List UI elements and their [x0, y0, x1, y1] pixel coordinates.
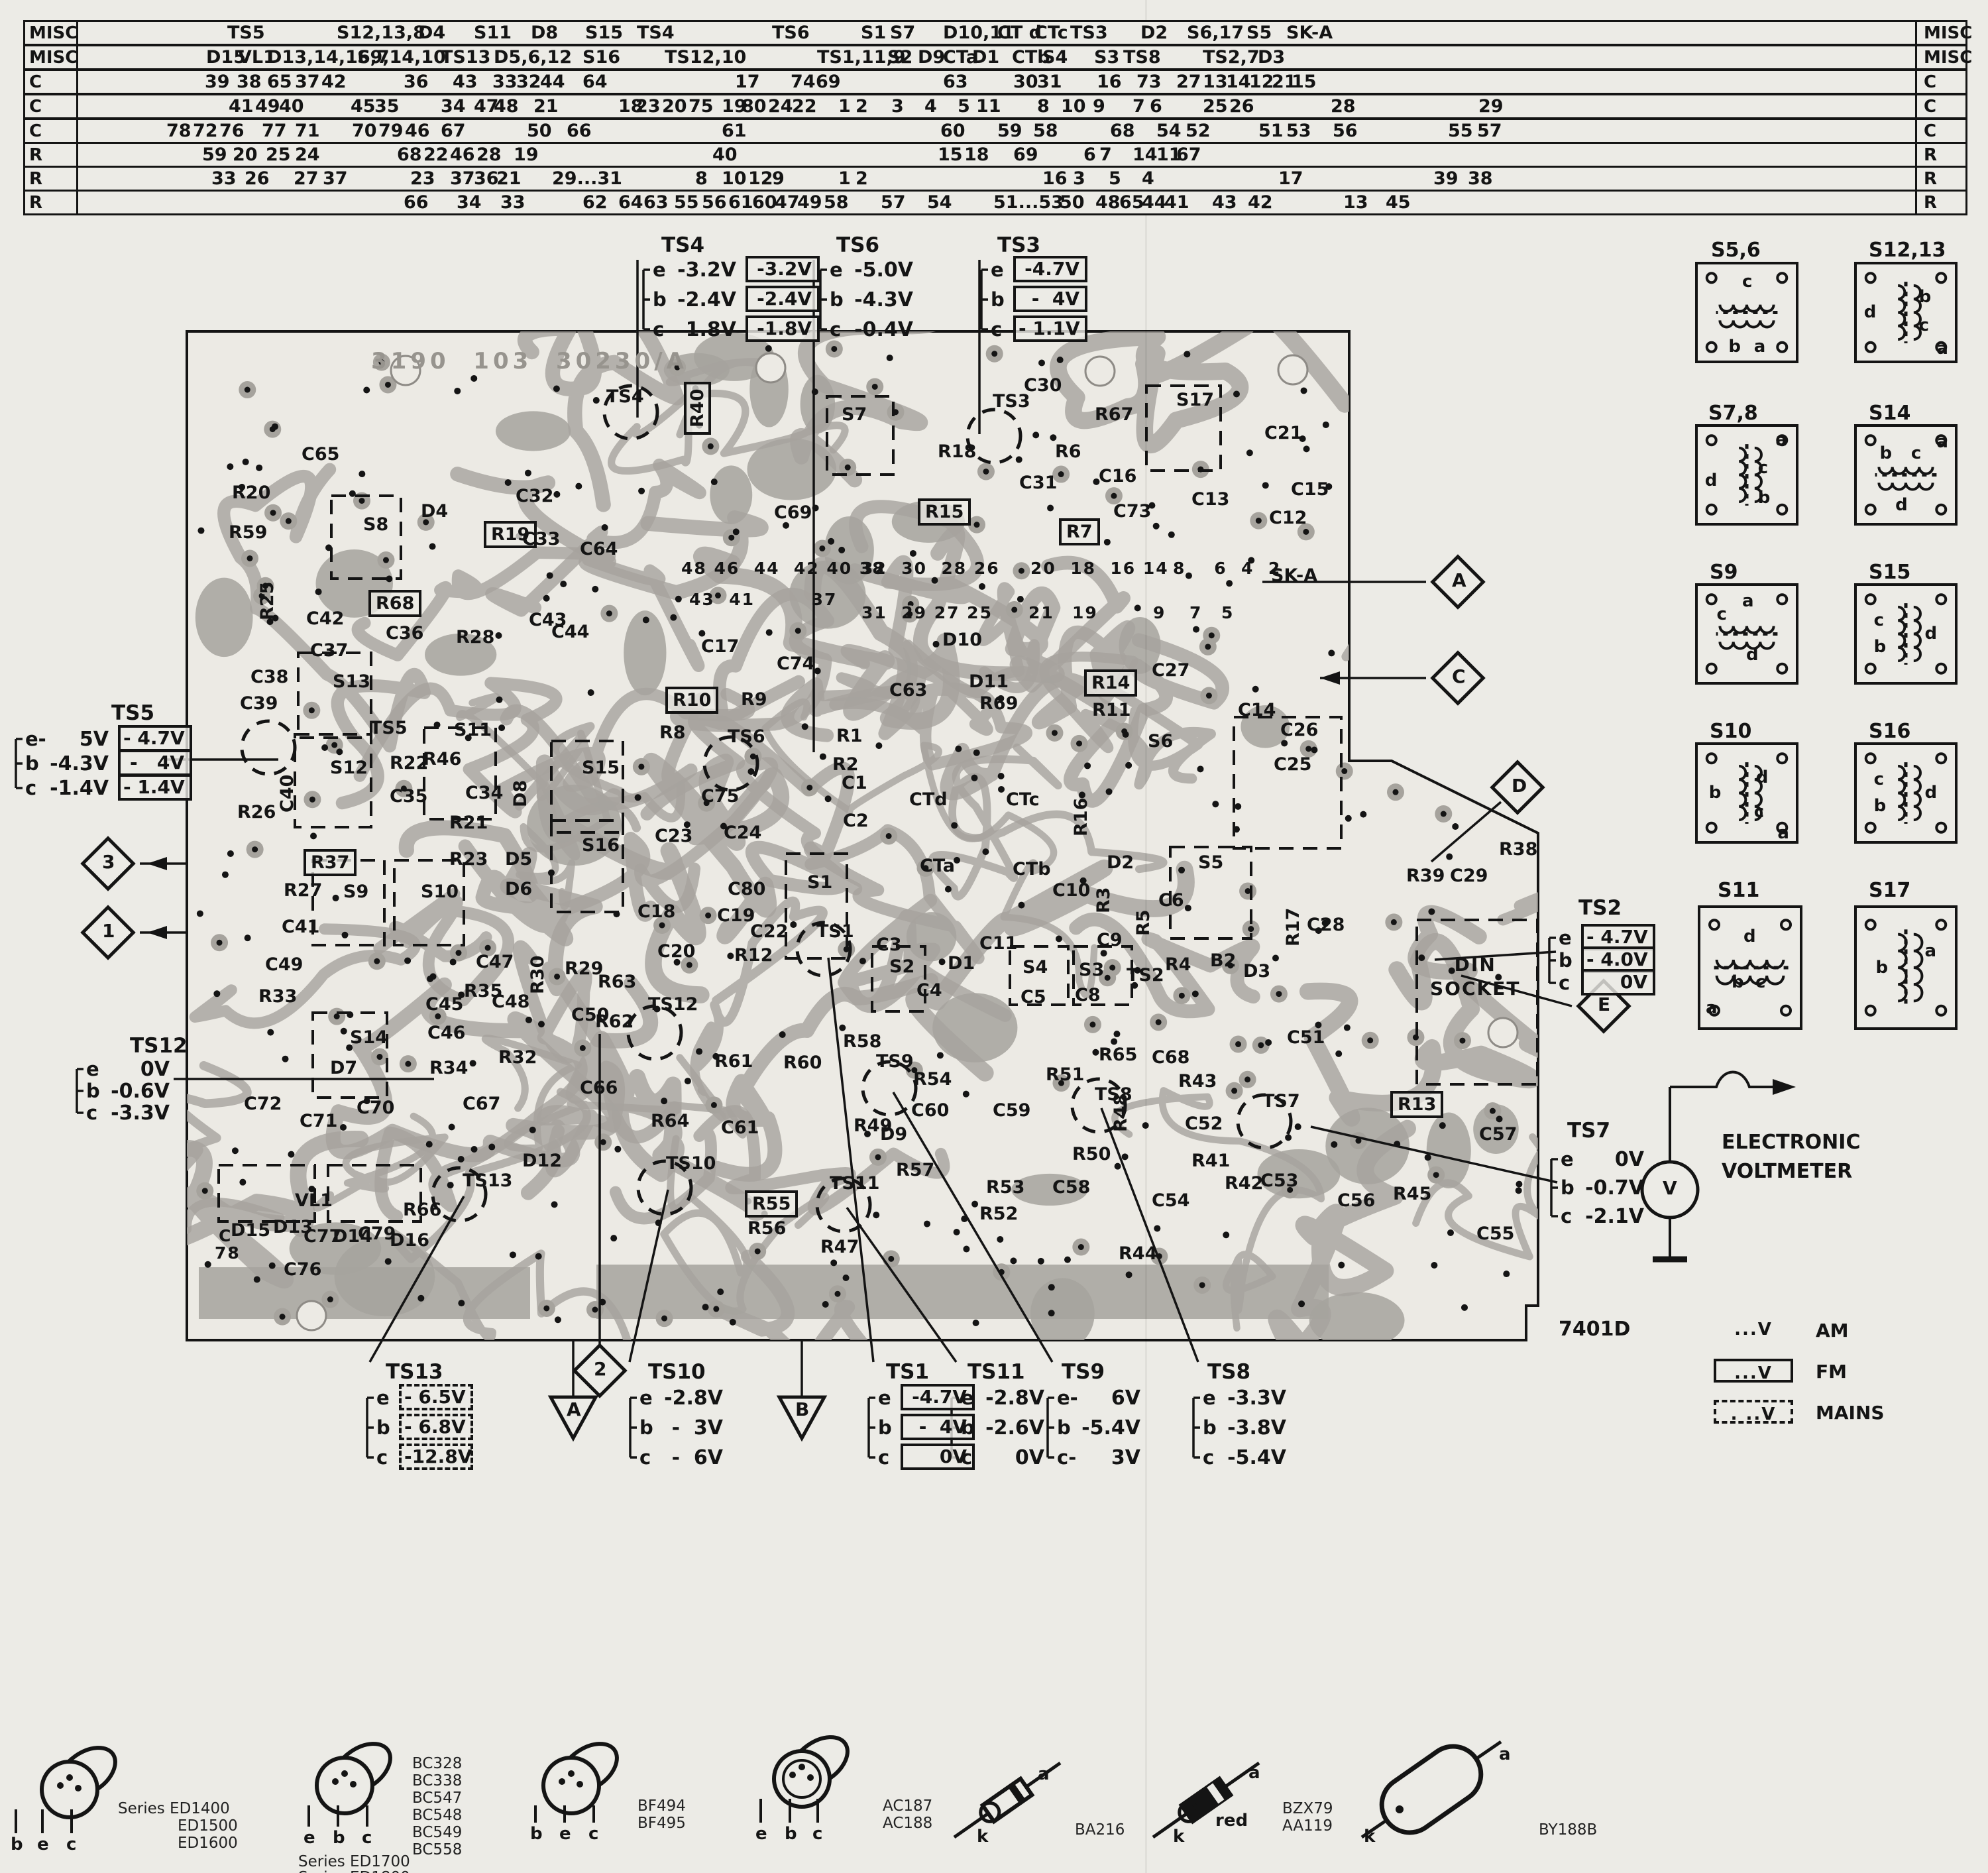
- board-label-R57: R57: [896, 1161, 934, 1179]
- board-label-TS9: TS9: [876, 1052, 914, 1070]
- pcb-graphic: [1421, 398, 1428, 404]
- board-label-32302826: 32 30 28 26: [861, 560, 1000, 577]
- coil-diagram-box-S15: [1854, 583, 1958, 685]
- legend-type-label-Series-ED1400: Series ED1400: [118, 1800, 230, 1817]
- pcb-graphic: [1428, 908, 1435, 915]
- pcb-graphic: [529, 1127, 536, 1133]
- table-cell: 41: [229, 96, 254, 117]
- pcb-graphic: [199, 1267, 530, 1319]
- pcb-graphic: [971, 1201, 978, 1208]
- coil-diagram-title-S11: S11: [1718, 879, 1759, 902]
- pcb-graphic: [385, 382, 391, 388]
- pcb-graphic: [470, 375, 477, 382]
- table-cell: 65: [267, 72, 292, 92]
- board-label-C29: C29: [1450, 867, 1488, 885]
- callout-box-TS4-e: -3.2V: [745, 256, 820, 282]
- coil-diagram-title-S17: S17: [1869, 879, 1910, 902]
- pcb-graphic: [659, 923, 665, 929]
- table-cell: 36: [474, 168, 499, 189]
- board-label-C76: C76: [284, 1261, 321, 1278]
- table-cell: 42: [1248, 192, 1273, 213]
- pcb-graphic: [945, 886, 952, 893]
- table-cell: 54: [1156, 121, 1182, 141]
- pcb-graphic: [789, 1772, 796, 1778]
- pcb-graphic: [1478, 701, 1484, 707]
- table-cell: 17: [735, 72, 760, 92]
- table-cell: 50: [527, 121, 552, 141]
- table-cell: 58: [1033, 121, 1058, 141]
- board-label-C46: C46: [427, 1024, 465, 1042]
- pcb-graphic: [496, 697, 502, 703]
- pcb-graphic: [1125, 762, 1132, 769]
- pcb-graphic: [197, 528, 204, 534]
- callout-value-TS6-e: -5.0V: [847, 258, 913, 282]
- mode-label-mains: MAINS: [1816, 1402, 1885, 1424]
- pcb-graphic: [1052, 730, 1058, 736]
- board-label-C56: C56: [1337, 1192, 1375, 1210]
- callout-pin-TS12-b: b: [86, 1080, 100, 1102]
- coil-pin-S11-d: d: [1743, 927, 1756, 946]
- board-label-C61: C61: [721, 1119, 759, 1137]
- board-label-C57: C57: [1479, 1125, 1517, 1143]
- table-cell: 37: [295, 72, 320, 92]
- board-label-TS7: TS7: [1262, 1092, 1300, 1110]
- board-label-C55: C55: [1476, 1225, 1514, 1243]
- board-label-C34: C34: [465, 784, 503, 802]
- board-label-R50: R50: [1072, 1145, 1111, 1163]
- diamond-connector-label-A: A: [1452, 569, 1466, 591]
- board-label-R5: R5: [1134, 909, 1152, 936]
- table-cell: D4: [418, 23, 445, 43]
- table-row-r-5: RR5920252468224628194015186967141167: [23, 142, 1967, 168]
- pcb-graphic: [1258, 1042, 1264, 1048]
- pcb-graphic: [755, 1248, 761, 1254]
- board-label-C30: C30: [1024, 376, 1062, 394]
- board-label-R7: R7: [1059, 518, 1100, 545]
- mode-label-fm: FM: [1816, 1361, 1847, 1383]
- pcb-graphic: [197, 910, 203, 917]
- legend-pin-e: e: [755, 1824, 767, 1844]
- din-socket-label: DINSOCKET: [1430, 953, 1520, 1001]
- board-label-S1: S1: [807, 874, 832, 891]
- pcb-graphic: [553, 491, 560, 498]
- pcb-graphic: [1490, 1108, 1496, 1114]
- table-cell: 6: [1083, 144, 1096, 165]
- board-label-20181614: 20 18 16 14: [1030, 560, 1169, 577]
- pcb-graphic: [991, 351, 997, 357]
- pcb-graphic: [1019, 568, 1024, 574]
- table-cell: 60: [940, 121, 966, 141]
- pcb-graphic: [449, 1123, 455, 1130]
- pcb-graphic: [843, 1275, 850, 1281]
- pcb-graphic: [1104, 539, 1111, 545]
- callout-value-TS10-b: - 3V: [657, 1416, 723, 1440]
- table-cell: 68: [397, 144, 422, 165]
- coil-pin-S15-c: c: [1874, 610, 1884, 630]
- pcb-graphic: [1184, 351, 1190, 357]
- pcb-graphic: [711, 1102, 717, 1108]
- pcb-graphic: [1233, 390, 1240, 397]
- board-label-R8: R8: [659, 724, 686, 742]
- legend-pin-e: e: [559, 1824, 571, 1844]
- table-cell: 3: [891, 96, 904, 117]
- board-label-R58: R58: [843, 1033, 881, 1050]
- callout-value-TS8-b: -3.8V: [1220, 1416, 1286, 1440]
- triangle-connector-label-A: A: [567, 1398, 581, 1420]
- coil-pin-S12,13-d: d: [1864, 302, 1877, 322]
- table-cell: 40: [279, 96, 304, 117]
- arrowhead: [147, 857, 167, 870]
- pcb-graphic: [547, 572, 553, 579]
- pcb-graphic: [982, 848, 989, 855]
- table-cell: 33: [211, 168, 237, 189]
- board-label-C66: C66: [580, 1079, 618, 1097]
- pcb-graphic: [404, 957, 411, 964]
- table-cell: 78: [166, 121, 192, 141]
- board-label-S15: S15: [582, 759, 620, 777]
- pcb-graphic: [802, 723, 808, 730]
- table-cell: 8: [695, 168, 708, 189]
- callout-value-TS12-e: 0V: [103, 1058, 170, 1081]
- board-label-S16: S16: [582, 836, 620, 854]
- pcb-graphic: [1101, 950, 1107, 956]
- legend-pin-red: red: [1215, 1811, 1248, 1831]
- pcb-graphic: [1303, 529, 1309, 535]
- mode-symbol-mains: . ..V: [1714, 1400, 1793, 1424]
- pcb-graphic: [819, 545, 825, 551]
- table-cell: 24: [295, 144, 320, 165]
- pcb-graphic: [1016, 456, 1022, 463]
- pcb-graphic: [1113, 1031, 1120, 1037]
- callout-value-TS6-c: -0.4V: [847, 318, 913, 341]
- table-cell: S5: [1246, 23, 1272, 43]
- pcb-graphic: [1514, 740, 1531, 758]
- coil-pin-S9-d: d: [1746, 645, 1759, 665]
- pcb-graphic: [272, 424, 278, 430]
- pcb-graphic: [383, 557, 389, 563]
- pcb-graphic: [315, 589, 322, 595]
- board-label-R69: R69: [979, 695, 1018, 712]
- pcb-graphic: [1011, 606, 1017, 612]
- pcb-graphic: [1226, 580, 1233, 587]
- board-label-R66: R66: [403, 1201, 441, 1219]
- pcb-graphic: [859, 958, 866, 964]
- pcb-graphic: [1192, 991, 1199, 997]
- board-label-C33: C33: [522, 530, 560, 548]
- board-label-R25: R25: [258, 582, 276, 620]
- table-cell: 49: [255, 96, 280, 117]
- board-label-C32: C32: [516, 487, 553, 505]
- table-cell: 17: [1278, 168, 1303, 189]
- callout-box-TS4-b: -2.4V: [745, 286, 820, 312]
- diamond-connector-label-1: 1: [102, 920, 115, 942]
- pcb-graphic: [245, 387, 250, 393]
- board-label-R26: R26: [237, 803, 276, 821]
- board-label-C69: C69: [774, 504, 812, 522]
- table-cell: 16: [1097, 72, 1122, 92]
- service-manual-pcb-sheet: MISCMISCTS5S12,13,8D4S11D8S15TS4TS6S1S7D…: [0, 0, 1988, 1873]
- board-label-C72: C72: [244, 1095, 282, 1113]
- callout-pin-TS6-c: c: [830, 318, 841, 341]
- board-label-R44: R44: [1119, 1245, 1157, 1263]
- pcb-graphic: [828, 538, 834, 545]
- coil-diagram-title-S15: S15: [1869, 561, 1910, 584]
- pcb-graphic: [888, 1256, 894, 1262]
- board-label-C48: C48: [492, 993, 529, 1011]
- table-cell: 22: [792, 96, 817, 117]
- callout-title-TS8: TS8: [1207, 1360, 1250, 1384]
- table-cell: TS8: [1123, 47, 1161, 68]
- callout-value-TS12-c: -3.3V: [103, 1102, 170, 1125]
- pcb-graphic: [1465, 700, 1482, 717]
- pcb-graphic: [321, 744, 328, 751]
- callout-pin-TS2-b: b: [1559, 949, 1573, 972]
- pcb-graphic: [765, 345, 772, 352]
- pcb-graphic: [1519, 746, 1525, 752]
- coil-pin-S16-b: b: [1874, 796, 1887, 816]
- table-cell: 38: [237, 72, 262, 92]
- pcb-graphic: [1427, 683, 1433, 689]
- table-cell: 45: [1386, 192, 1411, 213]
- board-label-21: 21: [1028, 604, 1054, 621]
- pcb-graphic: [1516, 1181, 1522, 1188]
- pcb-graphic: [727, 952, 734, 959]
- callout-pin-TS8-c: c: [1203, 1446, 1214, 1469]
- board-label-R45: R45: [1393, 1185, 1431, 1203]
- table-row-label-right: C: [1915, 71, 1965, 93]
- legend-type-label-BC328: BC328: [412, 1755, 462, 1772]
- table-cell: 10: [1061, 96, 1086, 117]
- pcb-graphic: [730, 1319, 736, 1326]
- legend-pin-e: e: [304, 1828, 315, 1848]
- coil-diagram-title-S7,8: S7,8: [1708, 402, 1758, 425]
- pcb-graphic: [1256, 518, 1262, 524]
- pcb-graphic: [1305, 746, 1311, 752]
- pcb-graphic: [1111, 1039, 1117, 1045]
- table-cell: 5: [958, 96, 970, 117]
- table-cell: 50: [1060, 192, 1085, 213]
- pcb-graphic: [806, 785, 812, 791]
- table-cell: S12,13,8: [337, 23, 425, 43]
- pcb-graphic: [1179, 993, 1185, 999]
- board-label-C41: C41: [282, 918, 319, 936]
- board-label-TS2: TS2: [1127, 966, 1164, 984]
- pcb-graphic: [227, 850, 234, 857]
- table-cell: 70: [352, 121, 377, 141]
- board-label-C5: C5: [1021, 988, 1046, 1006]
- callout-pin-TS9-b: b: [1057, 1416, 1071, 1439]
- board-label-CTd: CTd: [909, 791, 948, 809]
- pcb-graphic: [979, 583, 985, 590]
- board-label-R23: R23: [449, 850, 488, 868]
- table-cell: 30: [1013, 72, 1038, 92]
- table-cell: 62: [582, 192, 608, 213]
- coil-pin-S5,6-b: b: [1728, 337, 1741, 357]
- pcb-graphic: [687, 962, 692, 968]
- board-label-R48: R48: [1112, 1094, 1130, 1132]
- board-label-19: 19: [1072, 604, 1098, 621]
- board-label-C42: C42: [306, 610, 344, 628]
- pcb-graphic: [1341, 768, 1347, 774]
- table-cell: 20: [662, 96, 687, 117]
- pcb-graphic: [243, 459, 249, 465]
- board-label-R30: R30: [529, 956, 547, 994]
- board-label-9: 9: [1153, 604, 1166, 621]
- pcb-graphic: [1235, 803, 1241, 810]
- board-label-C2: C2: [843, 812, 869, 830]
- callout-pin-TS5-b: b: [25, 752, 39, 775]
- table-cell: 63: [943, 72, 968, 92]
- board-label-C38: C38: [250, 668, 288, 686]
- pcb-graphic: [454, 388, 461, 394]
- board-label-D6: D6: [505, 880, 532, 898]
- table-cell: 40: [712, 144, 738, 165]
- board-label-C18: C18: [637, 903, 675, 921]
- legend-type-label-ED1600: ED1600: [178, 1835, 238, 1852]
- board-label-R34: R34: [429, 1059, 468, 1077]
- table-cell: 36: [404, 72, 429, 92]
- board-label-C36: C36: [386, 624, 423, 642]
- callout-value-TS11-b: -2.6V: [978, 1416, 1044, 1440]
- board-label-R40: R40: [684, 382, 711, 435]
- pcb-graphic: [286, 518, 292, 524]
- pcb-graphic: [1425, 1154, 1431, 1161]
- pcb-graphic: [232, 1147, 239, 1154]
- board-label-C22: C22: [750, 923, 788, 940]
- pcb-graphic: [963, 1091, 969, 1098]
- pcb-graphic: [831, 346, 837, 352]
- pcb-graphic: [1323, 422, 1329, 428]
- callout-box-TS2-c: 0V: [1581, 969, 1655, 995]
- table-cell: 55: [674, 192, 699, 213]
- pcb-graphic: [1047, 505, 1054, 512]
- pcb-graphic: [933, 641, 940, 648]
- pcb-graphic: [1078, 1244, 1084, 1250]
- table-cell: 72: [193, 121, 218, 141]
- pcb-graphic: [1111, 493, 1117, 499]
- pcb-graphic: [405, 1061, 411, 1067]
- board-label-C31: C31: [1019, 474, 1057, 492]
- pcb-graphic: [1508, 353, 1514, 359]
- board-label-TS12: TS12: [648, 995, 698, 1013]
- coil-pin-S14-b: b: [1879, 443, 1892, 463]
- callout-pin-TS8-e: e: [1203, 1387, 1216, 1409]
- board-label-D7: D7: [330, 1059, 357, 1077]
- callout-pin-TS8-b: b: [1203, 1416, 1217, 1439]
- pcb-graphic: [887, 355, 893, 361]
- pcb-graphic: [1235, 1041, 1241, 1047]
- table-cell: 49: [797, 192, 822, 213]
- pcb-graphic: [635, 794, 641, 801]
- board-label-R2: R2: [832, 756, 859, 773]
- pcb-graphic: [1367, 1037, 1373, 1043]
- pcb-graphic: [1212, 801, 1219, 807]
- pcb-graphic: [1303, 445, 1310, 452]
- table-cell: 68: [1110, 121, 1135, 141]
- pcb-graphic: [485, 945, 491, 951]
- coil-pin-S14-d: d: [1895, 495, 1908, 515]
- pcb-graphic: [924, 1221, 930, 1227]
- pcb-graphic: [429, 543, 436, 549]
- board-label-C21: C21: [1264, 424, 1302, 442]
- pcb-graphic: [1154, 1225, 1160, 1231]
- pcb-graphic: [336, 748, 343, 755]
- table-cell: 44: [540, 72, 565, 92]
- pcb-graphic: [470, 1060, 476, 1066]
- pcb-graphic: [1018, 902, 1024, 909]
- table-cell: S9,14,10: [357, 47, 446, 68]
- board-label-R4: R4: [1165, 956, 1191, 974]
- pcb-graphic: [973, 750, 980, 756]
- table-cell: 9: [772, 168, 785, 189]
- pcb-graphic: [1418, 954, 1425, 961]
- table-cell: 56: [702, 192, 727, 213]
- board-label-C8: C8: [1075, 986, 1101, 1004]
- pcb-graphic: [1295, 1123, 1301, 1130]
- table-cell: 9: [1093, 96, 1105, 117]
- callout-pin-TS7-c: c: [1561, 1205, 1572, 1227]
- legend-pin-a: a: [1499, 1744, 1511, 1764]
- pcb-graphic: [1134, 604, 1141, 611]
- pcb-graphic: [1038, 360, 1045, 367]
- table-cell: TS2,7: [1203, 47, 1260, 68]
- pcb-graphic: [971, 775, 977, 781]
- pcb-graphic: [661, 1316, 667, 1322]
- board-label-S8: S8: [363, 516, 388, 534]
- coil-pin-S15-d: d: [1925, 624, 1938, 644]
- coil-pin-S7,8-b: b: [1758, 488, 1771, 508]
- pcb-graphic: [374, 958, 380, 964]
- pcb-graphic: [708, 443, 714, 449]
- board-label-R38: R38: [1499, 840, 1537, 858]
- mode-symbol-fm: ...V: [1714, 1359, 1793, 1383]
- voltmeter-wire: [1670, 1072, 1789, 1088]
- table-cell: 22: [423, 144, 449, 165]
- pcb-graphic: [951, 822, 958, 828]
- pcb-graphic: [359, 498, 364, 504]
- legend-type-label-AC187: AC187: [883, 1797, 932, 1815]
- pcb-graphic: [1376, 466, 1383, 473]
- board-label-R28: R28: [456, 628, 494, 646]
- diode-body: [977, 1779, 1032, 1826]
- board-label-31292725: 31 29 27 25: [861, 604, 993, 621]
- board-label-C59: C59: [993, 1102, 1030, 1119]
- board-label-R33: R33: [258, 988, 297, 1005]
- table-cell: 55: [1448, 121, 1473, 141]
- board-label-C67: C67: [463, 1095, 500, 1113]
- table-cell: TS5: [227, 23, 265, 43]
- table-cell: 26: [245, 168, 270, 189]
- table-row-label-left: R: [25, 144, 78, 166]
- pcb-graphic: [954, 1229, 960, 1235]
- table-cell: 2: [856, 96, 868, 117]
- pcb-graphic: [334, 1013, 340, 1019]
- callout-value-TS5-b: -4.3V: [42, 752, 109, 775]
- pcb-graphic: [973, 522, 979, 528]
- table-cell: 37: [323, 168, 348, 189]
- pcb-graphic: [937, 1052, 944, 1058]
- arrowhead: [147, 926, 167, 939]
- board-label-R9: R9: [741, 691, 767, 709]
- table-row-label-right: R: [1915, 192, 1965, 213]
- board-label-C74: C74: [777, 655, 814, 673]
- board-label-C65: C65: [302, 445, 339, 463]
- callout-title-TS12: TS12: [130, 1034, 188, 1058]
- board-label-R6: R6: [1055, 443, 1081, 461]
- pcb-graphic: [458, 1300, 465, 1306]
- board-label-R51: R51: [1046, 1066, 1084, 1084]
- coil-symbol: [1857, 745, 1955, 841]
